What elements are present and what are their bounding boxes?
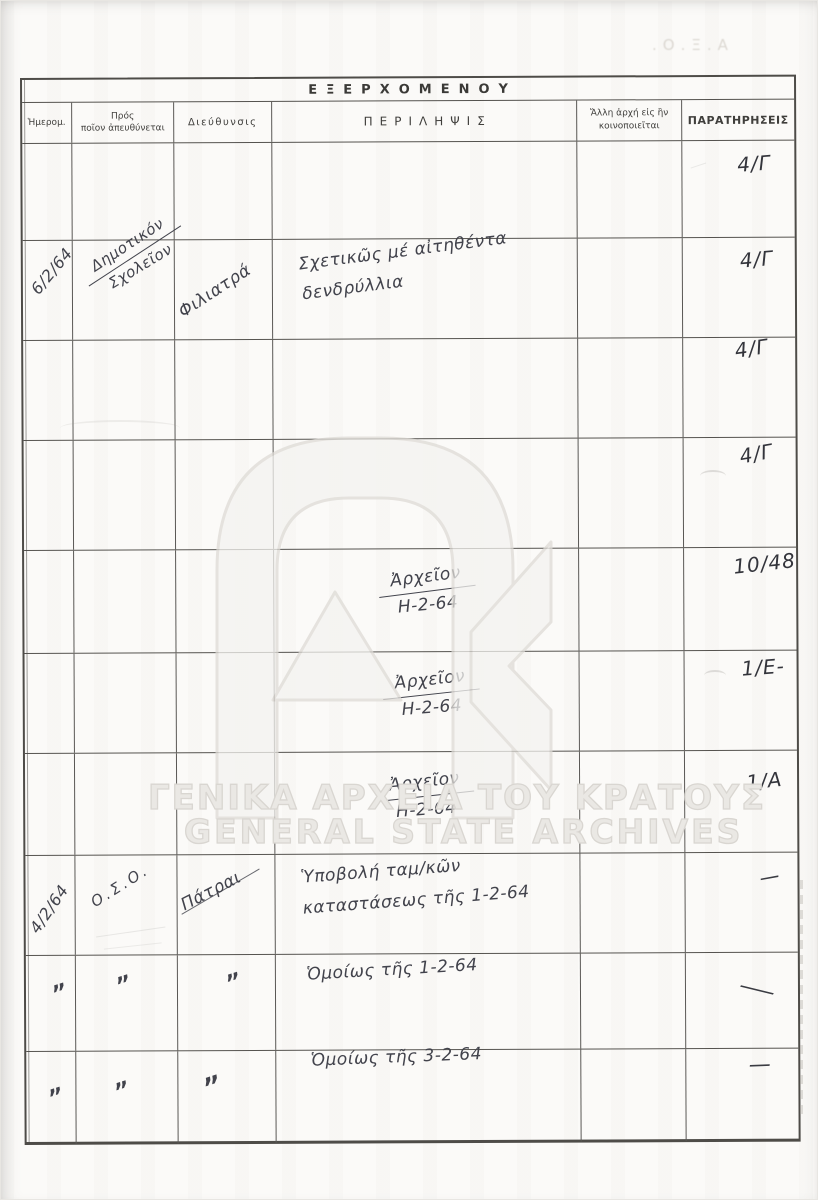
table-cell bbox=[24, 551, 74, 653]
column-header-remarks: ΠΑΡΑΤΗΡΗΣΕΙΣ bbox=[682, 100, 794, 140]
watermark-line2: GENERAL STATE ARCHIVES bbox=[184, 812, 743, 851]
table-cell bbox=[685, 853, 797, 952]
entry-remark-dash: — bbox=[748, 1052, 771, 1078]
table-cell bbox=[75, 653, 177, 752]
entry-remark: 4/Γ bbox=[739, 246, 775, 273]
smudge-mark bbox=[700, 470, 726, 482]
smudge-mark bbox=[60, 420, 180, 436]
bleedthrough-text: .Ο.Ξ.Α bbox=[652, 36, 734, 54]
table-cell bbox=[25, 754, 75, 855]
table-title: ΕΞΕΡΧΟΜΕΝΟΥ bbox=[299, 81, 517, 97]
table-cell bbox=[272, 142, 577, 239]
logo-triangle bbox=[273, 592, 401, 700]
table-cell bbox=[24, 441, 74, 550]
entry-remark: 1/Ε- bbox=[741, 654, 786, 681]
column-header-addressee: Πρός ποῖον ἀπευθύνεται bbox=[72, 102, 174, 142]
table-cell bbox=[686, 953, 798, 1048]
table-cell bbox=[25, 654, 75, 753]
scanned-register-page: .Ο.Ξ.Α ΕΞΕΡΧΟΜΕΝΟΥ Ἡμερομ. Πρός ποῖον ἀπ… bbox=[0, 0, 818, 1200]
entry-remark-dash: — bbox=[757, 863, 781, 891]
table-title-row: ΕΞΕΡΧΟΜΕΝΟΥ bbox=[22, 77, 794, 103]
entry-remark: 4/Γ bbox=[736, 150, 771, 176]
table-cell bbox=[581, 1049, 686, 1141]
table-cell bbox=[76, 1051, 178, 1143]
column-header-notified: Ἄλλη ἀρχή εἰς ἣν κοινοποιεῖται bbox=[577, 100, 682, 140]
table-cell bbox=[174, 143, 272, 239]
table-cell bbox=[22, 144, 72, 240]
column-header-date: Ἡμερομ. bbox=[22, 103, 72, 143]
edge-bleed-marks bbox=[800, 880, 803, 1120]
table-cell bbox=[579, 548, 684, 650]
table-cell bbox=[579, 438, 684, 547]
table-cell bbox=[686, 1049, 798, 1141]
table-cell bbox=[581, 953, 686, 1048]
table-cell bbox=[578, 238, 683, 337]
table-cell bbox=[178, 1051, 276, 1143]
column-header-address: Διεύθυνσις bbox=[174, 102, 272, 142]
column-header-summary: ΠΕΡΙΛΗΨΙΣ bbox=[272, 101, 577, 142]
entry-remark: 4/Γ bbox=[733, 334, 770, 363]
smudge-mark bbox=[704, 670, 726, 681]
table-cell bbox=[578, 338, 683, 437]
table-cell bbox=[74, 550, 176, 652]
table-cell bbox=[580, 651, 685, 750]
logo-arch bbox=[217, 438, 513, 818]
gak-logo-watermark bbox=[165, 370, 575, 825]
table-cell bbox=[74, 440, 176, 549]
table-cell bbox=[580, 853, 685, 952]
entry-summary-line1: Ὑποβολή ταμ/κῶν bbox=[300, 856, 462, 888]
table-cell bbox=[577, 141, 682, 237]
table-header-row: Ἡμερομ. Πρός ποῖον ἀπευθύνεται Διεύθυνσι… bbox=[22, 100, 794, 144]
